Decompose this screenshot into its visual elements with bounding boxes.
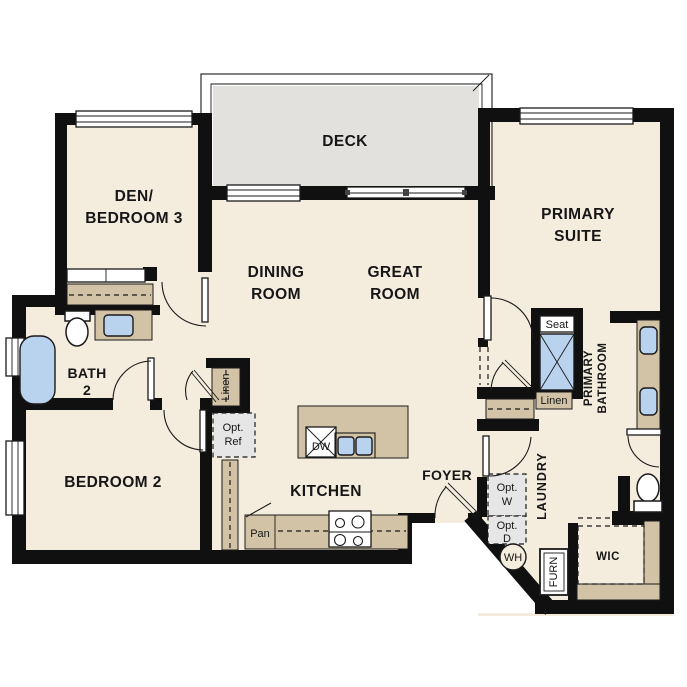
wall-segment [12, 550, 410, 564]
pantry-label: Pan [250, 528, 270, 540]
bath2-label-line2: 2 [83, 382, 91, 398]
dishwasher-label: DW [312, 441, 331, 453]
den-label-line1: DEN/ [115, 188, 154, 205]
primary-bath-label-line1: PRIMARY [583, 350, 595, 406]
primary-suite-label-line2: SUITE [554, 228, 602, 245]
wall-segment [477, 387, 539, 399]
floor-plan-page: DECK DEN/ BEDROOM 3 DINING ROOM GREAT RO… [0, 0, 687, 687]
dining-label-line2: ROOM [251, 286, 301, 303]
deck-label: DECK [322, 133, 368, 150]
seat-label: Seat [546, 319, 569, 331]
primary-suite-label-line1: PRIMARY [541, 206, 615, 223]
slider-track-end [345, 190, 350, 195]
foyer-label: FOYER [422, 467, 472, 483]
bath2-label-line1: BATH [67, 365, 106, 381]
opt-washer-box [488, 474, 526, 516]
wic-label: WIC [596, 551, 620, 563]
furnace-label: FURN [548, 557, 560, 588]
opt-ref-label-line2: Ref [224, 436, 242, 448]
water-heater-label: WH [504, 552, 522, 564]
slider-handle [403, 189, 409, 196]
great-label-line1: GREAT [367, 264, 422, 281]
kitchen-label: KITCHEN [290, 483, 362, 500]
wall-segment [618, 476, 630, 516]
dining-window [227, 185, 300, 201]
dining-label-line1: DINING [248, 264, 305, 281]
island-sink-left [338, 437, 354, 455]
wall-segment [531, 308, 540, 398]
slider-track-end [462, 190, 467, 195]
deck-railing-corner [473, 75, 489, 91]
opt-dryer-label-line2: D [503, 533, 511, 545]
primary-linen-label: Linen [541, 395, 568, 407]
opt-dryer-label-line1: Opt. [497, 520, 518, 532]
deck [201, 74, 492, 190]
opt-washer-label-line2: W [502, 496, 513, 508]
wall-segment [12, 295, 26, 564]
wall-segment [574, 308, 583, 398]
bedroom2-label: BEDROOM 2 [64, 474, 161, 491]
bath2-sink [104, 315, 133, 336]
primary-window [520, 108, 633, 124]
wall-segment [478, 108, 490, 298]
island-sink-right [356, 437, 372, 455]
laundry-label: LAUNDRY [535, 452, 549, 520]
bath2-tub [20, 336, 55, 404]
primary-toilet-bowl [637, 474, 659, 502]
den-window [76, 111, 192, 127]
wall-segment [535, 600, 674, 614]
great-label-line2: ROOM [370, 286, 420, 303]
den-label-line2: BEDROOM 3 [85, 210, 182, 227]
floor-plan-svg: DECK DEN/ BEDROOM 3 DINING ROOM GREAT RO… [0, 0, 687, 687]
hall-linen-label: Linen [220, 374, 232, 401]
wall-segment [660, 108, 674, 614]
opt-washer-label-line1: Opt. [497, 482, 518, 494]
wall-segment [477, 477, 487, 517]
wall-segment [477, 419, 539, 431]
bedroom2-window [6, 441, 24, 515]
opt-fridge-box [213, 413, 255, 457]
wall-segment [198, 113, 212, 272]
opt-ref-label-line1: Opt. [223, 422, 244, 434]
primary-toilet-tank [634, 501, 662, 512]
primary-sink-2 [640, 388, 657, 415]
primary-sink-1 [640, 327, 657, 354]
range-stove [329, 511, 371, 547]
wall-segment [55, 113, 67, 307]
wic-shelf-bottom [577, 584, 660, 600]
great-room-slider-door [345, 187, 467, 198]
bath2-toilet-bowl [66, 318, 88, 346]
primary-bath-label-line2: BATHROOM [597, 343, 609, 414]
wic-shelf-right [644, 521, 660, 588]
